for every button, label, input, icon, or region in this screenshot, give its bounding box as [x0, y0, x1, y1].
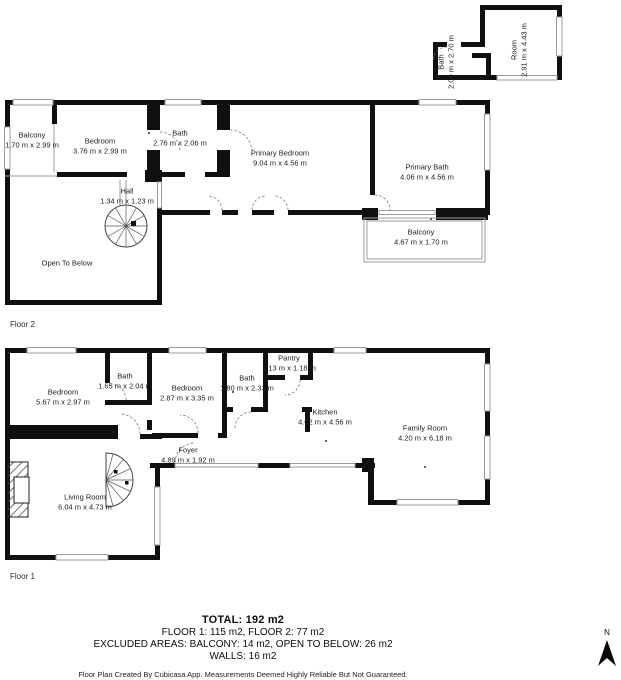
room-dims: 3.76 m x 2.99 m: [73, 146, 127, 156]
room-name: Bedroom: [160, 384, 214, 394]
room-name: Kitchen: [298, 408, 352, 418]
north-arrow: N: [594, 628, 620, 673]
room-dims: 2.76 m x 2.06 m: [153, 138, 207, 148]
room-dims: 4.02 m x 4.56 m: [298, 417, 352, 427]
room-name: Bath: [153, 129, 207, 139]
room-name: Bedroom: [36, 388, 90, 398]
room-name: Pantry: [262, 354, 316, 364]
excluded-areas: EXCLUDED AREAS: BALCONY: 14 m2, OPEN TO …: [0, 639, 486, 650]
floor2-walls: [5, 100, 490, 305]
room-dims: 1.70 m x 2.99 m: [5, 140, 59, 150]
floor1-label: Floor 1: [10, 572, 35, 581]
fireplace: [8, 462, 29, 517]
room-name: Open To Below: [42, 258, 93, 268]
room-name: Bath: [98, 372, 152, 382]
room-label-pantry: Pantry 1.13 m x 1.18 m: [262, 354, 316, 373]
room-label-balcony-f2-right: Balcony 4.67 m x 1.70 m: [394, 228, 448, 247]
room-label-open-to-below: Open To Below: [42, 258, 93, 268]
room-label-family-room: Family Room 4.20 m x 6.18 m: [398, 424, 452, 443]
room-name: Primary Bath: [400, 163, 454, 173]
room-label-balcony-f2-left: Balcony 1.70 m x 2.99 m: [5, 131, 59, 150]
attic-windows: [497, 17, 562, 80]
room-label-living-room: Living Room 6.04 m x 4.73 m: [58, 493, 112, 512]
room-name: Primary Bedroom: [251, 149, 309, 159]
room-label-bedroom1-f1: Bedroom 5.67 m x 2.97 m: [36, 388, 90, 407]
room-label-bath-f2: Bath 2.76 m x 2.06 m: [153, 129, 207, 148]
room-name: Hall: [100, 187, 154, 197]
room-label-bath2-f1: Bath 1.80 m x 2.33 m: [220, 374, 274, 393]
room-name: Bedroom: [73, 137, 127, 147]
tick-marks: [148, 132, 432, 468]
floor-areas: FLOOR 1: 115 m2, FLOOR 2: 77 m2: [0, 627, 486, 638]
floorplan-page: Bath 2.00 m x 2.70 m Room 2.91 m x 4.43 …: [0, 0, 621, 680]
room-dims: 5.67 m x 2.97 m: [36, 397, 90, 407]
room-label-primary-bedroom: Primary Bedroom 9.04 m x 4.56 m: [251, 149, 309, 168]
room-label-foyer: Foyer 4.89 m x 1.92 m: [161, 446, 215, 465]
room-label-bedroom2-f1: Bedroom 2.87 m x 3.35 m: [160, 384, 214, 403]
room-name: Balcony: [5, 131, 59, 141]
room-label-hall: Hall 1.34 m x 1.23 m: [100, 187, 154, 206]
room-dims: 4.20 m x 6.18 m: [398, 433, 452, 443]
room-label-attic-room: Room 2.91 m x 4.43 m: [510, 23, 529, 77]
room-label-primary-bath: Primary Bath 4.06 m x 4.56 m: [400, 163, 454, 182]
room-dims: 2.87 m x 3.35 m: [160, 393, 214, 403]
room-dims: 4.06 m x 4.56 m: [400, 172, 454, 182]
total-area: TOTAL: 192 m2: [0, 614, 486, 626]
app-credit: Floor Plan Created By Cubicasa App. Meas…: [0, 670, 486, 679]
room-name: Foyer: [161, 446, 215, 456]
room-dims: 6.04 m x 4.73 m: [58, 502, 112, 512]
room-dims: 1.34 m x 1.23 m: [100, 196, 154, 206]
room-name: Balcony: [394, 228, 448, 238]
room-name: Bath: [220, 374, 274, 384]
room-dims: 4.89 m x 1.92 m: [161, 455, 215, 465]
wall-areas: WALLS: 16 m2: [0, 651, 486, 662]
floorplan-drawing: [0, 0, 621, 680]
room-label-bath1-f1: Bath 1.65 m x 2.04 m: [98, 372, 152, 391]
room-name: Living Room: [58, 493, 112, 503]
room-label-attic-bath: Bath 2.00 m x 2.70 m: [437, 35, 456, 89]
north-label: N: [594, 628, 620, 637]
north-arrow-icon: [594, 638, 620, 668]
room-dims: 2.91 m x 4.43 m: [519, 23, 529, 77]
room-label-bedroom-f2: Bedroom 3.76 m x 2.99 m: [73, 137, 127, 156]
area-summary: TOTAL: 192 m2 FLOOR 1: 115 m2, FLOOR 2: …: [0, 614, 486, 679]
room-dims: 1.13 m x 1.18 m: [262, 363, 316, 373]
room-label-kitchen: Kitchen 4.02 m x 4.56 m: [298, 408, 352, 427]
room-name: Room: [510, 23, 520, 77]
room-dims: 9.04 m x 4.56 m: [251, 158, 309, 168]
room-dims: 4.67 m x 1.70 m: [394, 237, 448, 247]
room-dims: 1.65 m x 2.04 m: [98, 381, 152, 391]
room-dims: 1.80 m x 2.33 m: [220, 383, 274, 393]
room-name: Bath: [437, 35, 447, 89]
room-name: Family Room: [398, 424, 452, 434]
room-dims: 2.00 m x 2.70 m: [446, 35, 456, 89]
floor2-label: Floor 2: [10, 320, 35, 329]
floor2-windows: [5, 100, 491, 215]
